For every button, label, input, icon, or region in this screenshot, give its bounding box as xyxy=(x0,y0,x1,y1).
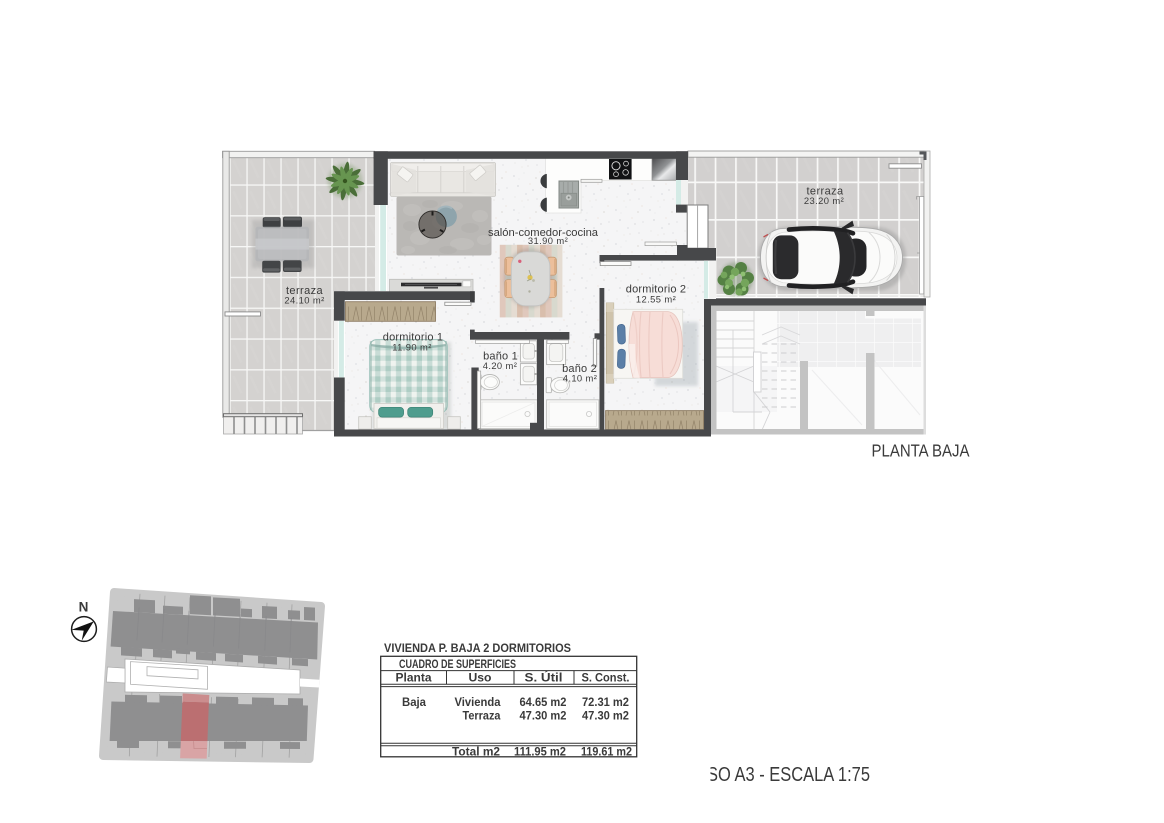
svg-text:47.30 m2: 47.30 m2 xyxy=(582,709,629,723)
svg-text:S. Const.: S. Const. xyxy=(582,671,630,685)
svg-text:Terraza: Terraza xyxy=(463,709,501,723)
svg-text:VIVIENDA P. BAJA 2 DORMITORIOS: VIVIENDA P. BAJA 2 DORMITORIOS xyxy=(384,641,571,655)
svg-text:Uso: Uso xyxy=(469,671,492,685)
svg-text:Total m2: Total m2 xyxy=(452,744,500,758)
svg-text:24.10 m²: 24.10 m² xyxy=(284,295,324,306)
svg-text:64.65 m2: 64.65 m2 xyxy=(520,695,567,709)
svg-text:4.10 m²: 4.10 m² xyxy=(563,372,598,383)
svg-text:Vivienda: Vivienda xyxy=(455,695,501,709)
svg-text:Baja: Baja xyxy=(402,695,426,709)
svg-text:72.31 m2: 72.31 m2 xyxy=(582,695,629,709)
svg-text:23.20 m²: 23.20 m² xyxy=(804,195,844,206)
svg-text:Planta: Planta xyxy=(396,671,432,685)
svg-text:111.95 m2: 111.95 m2 xyxy=(514,744,566,758)
svg-text:4.20 m²: 4.20 m² xyxy=(483,360,518,371)
svg-text:N: N xyxy=(79,600,89,615)
svg-text:12.55 m²: 12.55 m² xyxy=(636,293,676,304)
svg-text:47.30 m2: 47.30 m2 xyxy=(520,709,567,723)
svg-text:11.90 m²: 11.90 m² xyxy=(392,342,432,353)
svg-text:S. Útil: S. Útil xyxy=(525,670,563,685)
svg-text:31.90 m²: 31.90 m² xyxy=(528,235,568,246)
svg-text:SO A3 - ESCALA 1:75: SO A3 - ESCALA 1:75 xyxy=(707,764,870,786)
svg-text:PLANTA BAJA: PLANTA BAJA xyxy=(872,441,970,461)
svg-text:119.61 m2: 119.61 m2 xyxy=(581,744,632,758)
svg-text:CUADRO DE SUPERFICIES: CUADRO DE SUPERFICIES xyxy=(399,657,516,671)
